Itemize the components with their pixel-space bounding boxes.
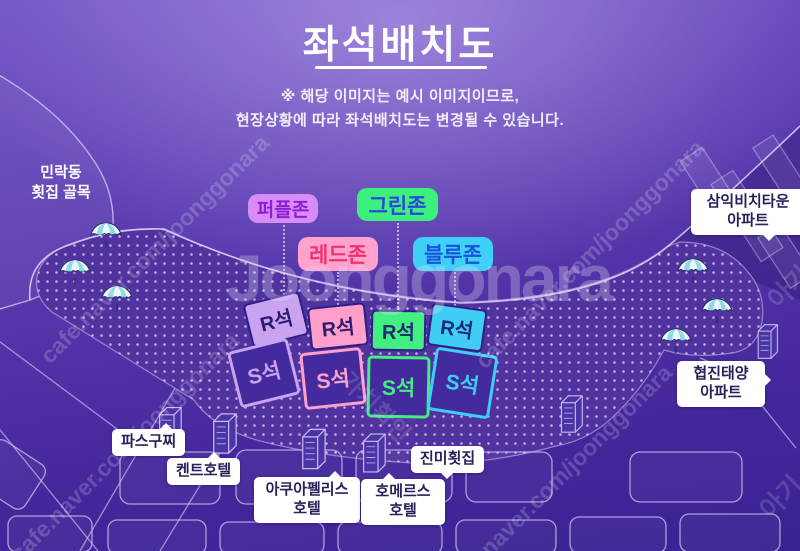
callout-pointer: [207, 445, 221, 459]
callout-hyupjin-apartment: 협진태양 아파트: [677, 361, 765, 407]
callout-line: 진미횟집: [420, 450, 475, 467]
callout-line: 호메르스: [370, 483, 436, 502]
building-icon: [561, 396, 582, 432]
callout-line: 켄트호텔: [176, 462, 231, 479]
callout-kent-hotel: 켄트호텔: [167, 458, 240, 485]
callout-pointer: [764, 373, 778, 387]
callout-line: 삼익비치타운: [700, 193, 796, 212]
callout-samik-beach-town: 삼익비치타운 아파트: [691, 189, 800, 235]
callout-line: 협진태양: [686, 365, 756, 384]
callout-pointer: [159, 416, 173, 430]
notice-line-1: ※ 해당 이미지는 예시 이미지이므로,: [0, 85, 800, 106]
zone-pill-purple: 퍼플존: [248, 194, 318, 223]
callout-line: 호텔: [263, 500, 351, 519]
callout-line: 아파트: [700, 212, 796, 231]
callout-pointer: [440, 472, 454, 486]
zone-pill-green: 그린존: [357, 188, 438, 221]
callout-homers-hotel: 호메르스 호텔: [361, 479, 445, 525]
building-icon: [303, 429, 325, 468]
label-line: 민락동: [16, 163, 106, 183]
building-icon: [758, 325, 777, 359]
callout-aqua-palace-hotel: 아쿠아펠리스 호텔: [254, 477, 360, 523]
label-minrak-alley: 민락동 횟집 골목: [16, 163, 106, 204]
title-underline: [315, 66, 487, 69]
callout-line: 아쿠아펠리스: [263, 481, 351, 500]
callout-pascucci: 파스구찌: [112, 429, 185, 456]
label-line: 횟집 골목: [16, 183, 106, 203]
callout-pointer: [762, 234, 776, 248]
callout-pointer: [328, 464, 342, 478]
callout-jinmi-restaurant: 진미횟집: [411, 446, 484, 473]
callout-line: 아파트: [686, 384, 756, 403]
notice-line-2: 현장상황에 따라 좌석배치도는 변경될 수 있습니다.: [0, 109, 800, 130]
callout-pointer: [382, 466, 396, 480]
callout-line: 호텔: [370, 502, 436, 521]
seating-map-page: 퍼플존 그린존 레드존 블루존 R석 R석 R석 R석 S석 S석 S석 S석 …: [0, 0, 800, 551]
page-title: 좌석배치도: [0, 14, 800, 70]
callout-line: 파스구찌: [121, 433, 176, 450]
